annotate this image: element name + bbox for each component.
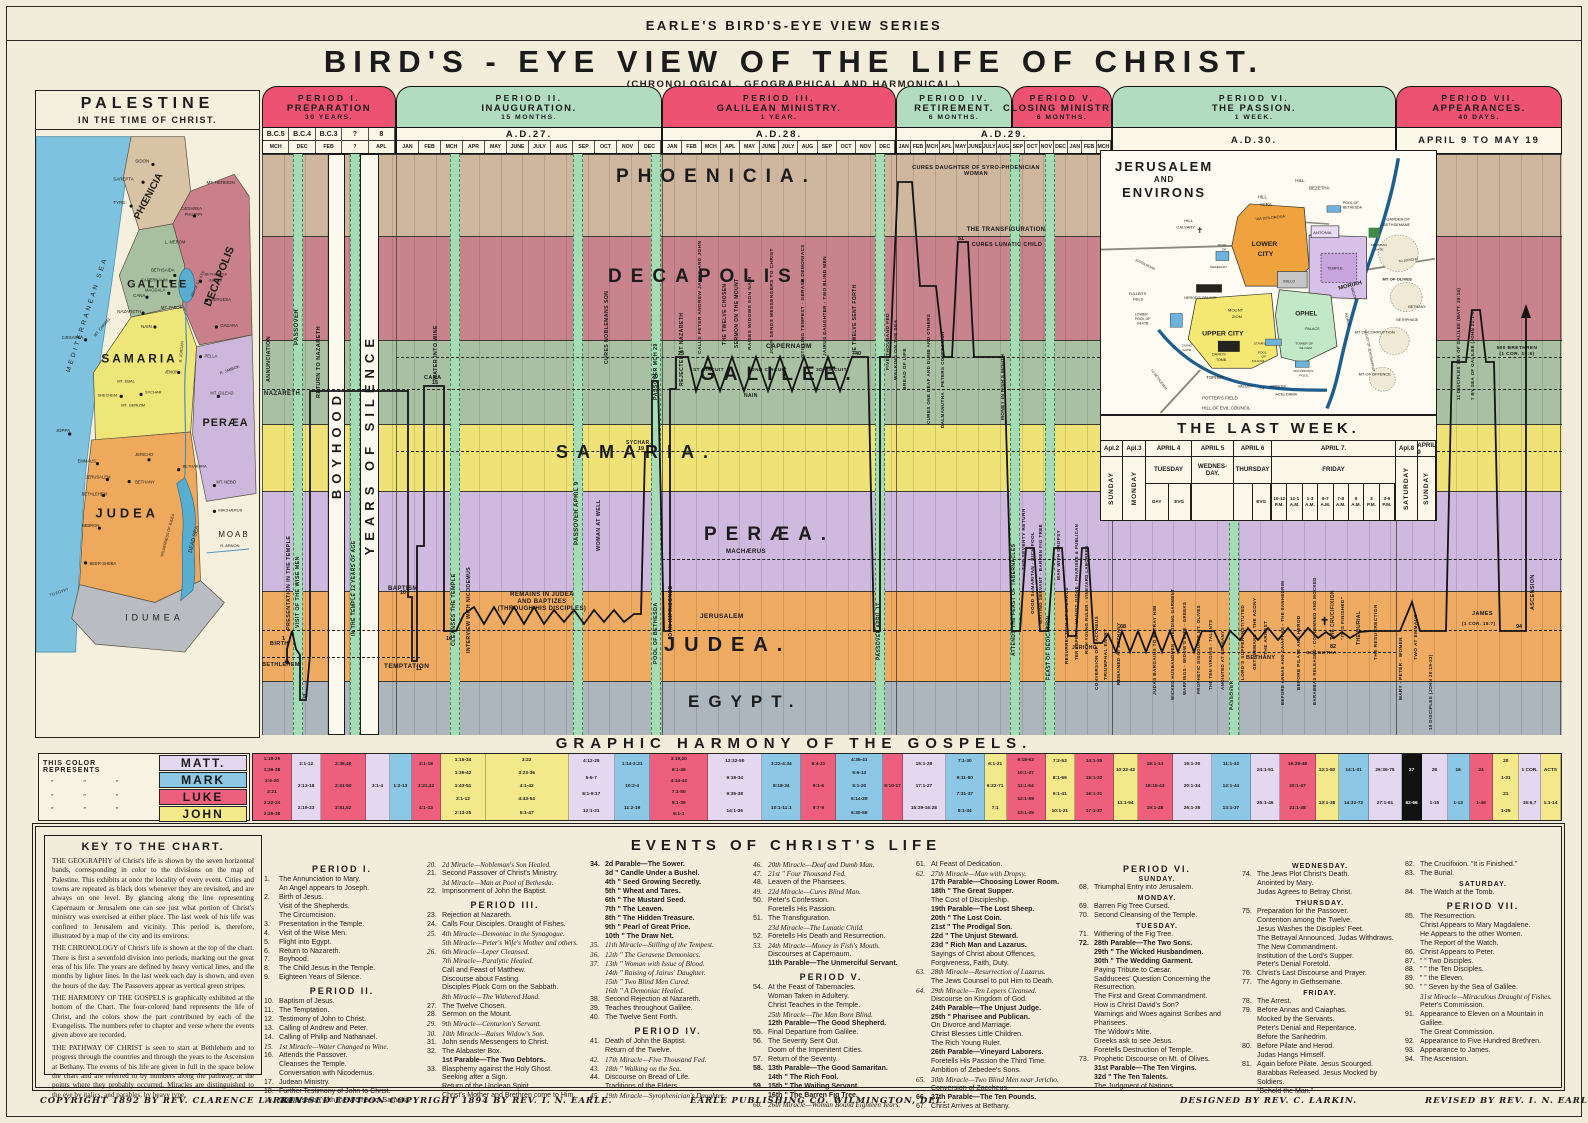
event-line: 4.Visit of the Wise Men. (264, 930, 420, 939)
city-dot (102, 494, 105, 497)
month-cell: NOV (856, 141, 875, 153)
event-line: Return of the Unclean Spirit. (427, 1083, 583, 1092)
event-number: 74. (1242, 871, 1257, 880)
event-number: 92. (1405, 1038, 1420, 1047)
map-label: ANTONIA (1313, 230, 1332, 235)
bottom-panel: KEY TO THE CHART. THE GEOGRAPHY of Chris… (35, 826, 1562, 1088)
davids-tomb-mark (1218, 341, 1240, 352)
city-dot (139, 393, 142, 396)
harmony-reference: 14:32-72 (1344, 801, 1363, 807)
event-number: 82. (1405, 861, 1420, 870)
harmony-reference: 25:1-46 (1257, 801, 1274, 807)
event-period-heading: PERIOD I. (264, 864, 420, 874)
map-label: SHUSHAN (1371, 243, 1388, 247)
event-day-heading: TUESDAY. (1079, 923, 1235, 930)
event-line: 22.Imprisonment of John the Baptist. (427, 888, 583, 897)
event-line: The Cost of Discipleship. (916, 897, 1072, 906)
event-number: 80. (1242, 1043, 1257, 1052)
harmony-reference: 16:1-31 (1086, 792, 1103, 798)
harmony-reference: 5-6-7 (586, 776, 597, 782)
event-number: 93. (1405, 1047, 1420, 1056)
jerusalem-title-line2: AND (1115, 175, 1213, 185)
arnon-river (206, 549, 249, 553)
event-line: 87.” ” Two Disciples. (1405, 958, 1561, 967)
harmony-reference: 9:18-62 (1017, 758, 1034, 764)
map-label: MACHÆRUS (218, 507, 242, 512)
period-tab: PERIOD VII.APPEARANCES.40 DAYS. (1396, 86, 1562, 127)
event-line: Visit of the Shepherds. (264, 903, 420, 912)
harmony-reference: 9:7-9 (813, 806, 824, 812)
harmony-reference: 9:11-50 (957, 776, 973, 782)
event-line: 4th " Seed Growing Secretly. (590, 879, 746, 888)
harmony-reference: 10:1-11:1 (771, 806, 792, 812)
last-week-day: THURSDAY (1234, 457, 1271, 484)
last-week-date: APRIL 4 (1146, 441, 1191, 457)
event-number: 35. (590, 941, 605, 950)
map-label: GETHSEMANE (1382, 223, 1410, 227)
harmony-reference: 19:1-28 (1147, 806, 1164, 812)
event-line: 27.The Twelve Chosen. (427, 1003, 583, 1012)
map-label: DUNG (1182, 343, 1192, 347)
last-week-day-area: TUESDAYDAYEVG (1146, 457, 1191, 520)
city-dot (106, 478, 109, 481)
harmony-reference: 4:1-13 (419, 806, 433, 812)
event-line: Cleanses the Temple. (264, 1061, 420, 1070)
event-number: 12. (264, 1016, 279, 1025)
harmony-segment: 19:29-4820:1-4721:1-38 (1280, 754, 1315, 820)
map-label: TEMPLE (1327, 267, 1343, 271)
map-label: SAREPTA (113, 176, 133, 181)
harmony-reference: 18:1-14 (1147, 762, 1164, 768)
city-dot (68, 432, 71, 435)
harmony-reference: 3:22 (522, 758, 532, 764)
harmony-reference: 11:1-33 (1223, 762, 1239, 768)
event-number: 91. (1405, 1011, 1420, 1020)
period-duration: 40 DAYS. (1458, 114, 1500, 121)
map-label: OPHEL (1295, 311, 1317, 318)
event-line: 35.11th Miracle—Stilling of the Tempest. (590, 941, 746, 950)
harmony-reference: 21 (1503, 792, 1508, 798)
harmony-reference: 20 (1503, 759, 1508, 765)
event-number: 26. (427, 948, 442, 957)
event-line: The Jews Counsel to put Him to Death. (916, 978, 1072, 987)
ditto-marks: ″ ″ ″ (43, 807, 153, 814)
harmony-reference: 6:14-29 (851, 797, 868, 803)
event-line: The Report of the Watch. (1405, 940, 1561, 949)
harmony-reference: 10:1-21 (1052, 809, 1069, 815)
harmony-reference: 20:1-47 (1289, 784, 1306, 790)
city-dot (177, 371, 180, 374)
last-week-day-label: SUNDAY (1108, 472, 1115, 505)
harmony-reference: 13:1-35 (1017, 811, 1034, 817)
key-paragraph: THE GEOGRAPHY of Christ's life is shown … (52, 857, 254, 941)
event-number: 13. (264, 1025, 279, 1034)
event-line: 49.22d Miracle—Cures Blind Man. (753, 888, 909, 897)
event-number: 25. (427, 930, 442, 939)
key-paragraph: THE CHRONOLOGY of Christ's life is shown… (52, 944, 254, 991)
event-number: 8. (264, 965, 279, 974)
event-number: 1. (264, 876, 279, 885)
map-label: ZION (1232, 314, 1242, 319)
harmony-reference: 15:1-32 (1086, 776, 1103, 782)
event-line: Greeks ask to see Jesus. (1079, 1038, 1235, 1047)
event-number: 14. (264, 1034, 279, 1043)
event-line: 54.At the Feast of Tabernacles. (753, 984, 909, 993)
harmony-segment: 15:1-2817:1-2715:29-16:28 (903, 754, 946, 820)
solomons-pool-mark (1295, 361, 1309, 367)
event-number: 31. (427, 1039, 442, 1048)
map-label: KIDRON (1344, 313, 1351, 327)
harmony-reference: 7:2-53 (1053, 759, 1067, 765)
harmony-segment: 201-31211-25 (1493, 754, 1519, 820)
map-label: SOLOMON'S (1293, 369, 1313, 373)
event-line: 65.30th Miracle—Two Blind Men near Jeric… (916, 1076, 1072, 1085)
month-cell: FEB (1082, 141, 1096, 153)
harmony-segment: 24:1-5125:1-46 (1251, 754, 1280, 820)
city-dot (98, 527, 101, 530)
period-name: PREPARATION (287, 103, 371, 114)
event-line: How is Christ David's Son? (1079, 1002, 1235, 1011)
event-number: 23. (427, 912, 442, 921)
event-line: 92.Appearance to Five Hundred Brethren. (1405, 1038, 1561, 1047)
event-number: 38. (590, 996, 605, 1005)
ditto-marks: ″ ″ ″ (43, 794, 153, 801)
map-label: POOL OF (1135, 317, 1151, 321)
city-dot (120, 395, 123, 398)
map-label: JERICHO (135, 452, 154, 457)
city-dot (167, 292, 170, 295)
last-week-day-area: SUNDAY (1101, 457, 1122, 520)
harmony-reference: 1:2-13 (393, 784, 407, 790)
harmony-reference: 8:4-21 (811, 762, 825, 768)
last-week-day-area: SUNDAY (1418, 457, 1435, 520)
map-label: HILL OF EVIL COUNCIL (1202, 406, 1251, 411)
event-line: 46.20th Miracle—Deaf and Dumb Man. (753, 861, 909, 870)
month-cell: MCH (702, 141, 721, 153)
event-number: 94. (1405, 1056, 1420, 1065)
event-number: 70. (1079, 912, 1094, 921)
event-line: 72.28th Parable—The Two Sons. (1079, 940, 1235, 949)
event-line: 80.Before Pilate and Herod. (1242, 1043, 1398, 1052)
harmony-segment: 12:22-509:18-349:35-3814:1-36 (708, 754, 762, 820)
event-line: 3.Presentation in the Temple. (264, 921, 420, 930)
harmony-segment: 9:10-17 (883, 754, 903, 820)
month-cell: JULY (983, 141, 997, 153)
month-cell: FEB (316, 141, 342, 153)
timeline-year-cells: B.C.5B.C.4B.C.3?8 (263, 128, 395, 140)
event-line: Contention among the Twelve. (1242, 917, 1398, 926)
event-number: 55. (753, 1029, 768, 1038)
month-cell: AUG (997, 141, 1011, 153)
year-cell: ? (342, 128, 368, 140)
event-line: 7th Miracle—Paralytic Healed. (427, 957, 583, 966)
year-cell: 8 (369, 128, 395, 140)
event-line: Christ Teaches in the Temple. (753, 1002, 909, 1011)
harmony-reference: 6:22-71 (987, 784, 1004, 790)
map-label: PALACE (1305, 327, 1320, 331)
map-label: CALVARY (1176, 225, 1195, 230)
event-number: 20. (427, 861, 442, 870)
map-label: MT. HERMON (206, 180, 234, 185)
last-week-date: APRIL 6 (1234, 441, 1271, 457)
events-column: 34.2d Parable—The Sower.3d " Candle Unde… (590, 861, 746, 1101)
month-cell: APL (940, 141, 954, 153)
harmony-reference: 2:22-24 (264, 801, 281, 807)
event-number: 59. (753, 1083, 768, 1092)
map-label: DAVID'S (1212, 353, 1226, 357)
event-line: Christ Blesses Little Children. (916, 1031, 1072, 1040)
map-label: HILL (1295, 178, 1305, 183)
last-week-day: SUNDAY (1101, 457, 1122, 520)
event-number: 22. (427, 888, 442, 897)
harmony-reference: 14:1-35 (1086, 759, 1103, 765)
period-number: PERIOD III. (743, 93, 815, 103)
last-week-hour-cell: 10-12 P.M. (1272, 484, 1287, 520)
city-dot (151, 163, 154, 166)
event-line: 44.Discourse on Bread of Life. (590, 1074, 746, 1083)
event-line: Doom of the Impenitent Cities. (753, 1047, 909, 1056)
last-week-title: THE LAST WEEK. (1101, 416, 1436, 441)
event-number: 21. (427, 870, 442, 879)
event-line: 64.29th Miracle—Ten Lepers Cleansed. (916, 987, 1072, 996)
harmony-segment: 3:1-183:21,224:1-13 (412, 754, 441, 820)
map-label: HILL (1184, 218, 1194, 223)
event-line: The First and Great Commandment. (1079, 993, 1235, 1002)
pool-of-siloam-mark (1266, 339, 1282, 345)
map-label: R. ARNON (220, 543, 239, 548)
map-label: BETHPHAGE (1396, 318, 1419, 322)
map-label: MT OF OFFENCE (1359, 373, 1392, 377)
period-tab: PERIOD V.CLOSING MINISTRY.6 MONTHS. (1012, 86, 1112, 127)
event-line: Discourse about Fasting. (427, 976, 583, 985)
harmony-reference: 14:1-31 (1345, 768, 1362, 774)
timeline-year-label: A.D.27. (397, 128, 661, 140)
harmony-reference: 10:2-4 (625, 784, 639, 790)
chart-page: EARLE'S BIRD'S-EYE VIEW SERIES BIRD'S - … (0, 0, 1588, 1123)
event-line: 40.The Twelve Sent Forth. (590, 1014, 746, 1023)
timeline-months: JANFEBMCHAPLMAYJUNEJULYAUGSEPOCTNOVDEC (663, 140, 895, 153)
map-label: TOWER OF (1295, 342, 1313, 346)
month-cell: JAN (897, 141, 911, 153)
last-week-column: Apl.3MONDAY (1123, 441, 1146, 520)
month-cell: MAY (485, 141, 507, 153)
period-name: APPEARANCES. (1432, 103, 1526, 114)
event-number: 5. (264, 939, 279, 948)
last-week-day: TUESDAY (1146, 457, 1191, 484)
map-label: IDUMEA (125, 612, 183, 622)
event-line: Christ Appears to Mary Magdalene. (1405, 922, 1561, 931)
map-label: FIELD (1133, 298, 1144, 302)
timeline-year-label: A.D.29. (897, 128, 1111, 140)
event-line: 86.Christ Appears to Peter. (1405, 949, 1561, 958)
jerusalem-map: JERUSALEM AND ENVIRONS (1100, 150, 1437, 415)
harmony-segment: 4:12-255-6-78:1-9:1712:1-21 (569, 754, 616, 820)
map-label: ÆNON (165, 370, 178, 375)
harmony-reference: 10:22-42 (1116, 768, 1135, 774)
month-cell: FEB (419, 141, 441, 153)
event-number: 29. (427, 1020, 442, 1029)
event-line: 51.The Transfiguration. (753, 915, 909, 924)
event-number: 42. (590, 1056, 605, 1065)
map-label: STAIRS (1254, 342, 1266, 346)
map-label: GADARA (220, 323, 238, 328)
last-week-day: WEDNES- DAY. (1192, 457, 1233, 484)
event-line: Barabbas Released. Jesus Mocked by Soldi… (1242, 1070, 1398, 1088)
harmony-reference: 14:1-36 (726, 809, 743, 815)
period-number: PERIOD I. (298, 93, 360, 103)
period-number: PERIOD VI. (1219, 93, 1289, 103)
harmony-legend: THIS COLOR REPRESENTS ″ ″ ″ ″ ″ ″ ″ ″ ″ … (38, 753, 250, 821)
event-line: 32d " The Ten Talents. (1079, 1074, 1235, 1083)
event-line: 77.The Agony in Gethsemane. (1242, 979, 1398, 988)
map-label: GERGESA (210, 297, 231, 302)
event-number: 75. (1242, 908, 1257, 917)
map-label: GARDEN OF (1386, 218, 1410, 222)
map-label: JOPPA ROAD (1134, 258, 1156, 271)
ascension-arrow-icon (1521, 304, 1531, 318)
event-line: 26.6th Miracle—Leper Cleansed. (427, 948, 583, 957)
map-label: JOPPA (56, 428, 70, 433)
event-line: 6th " The Mustard Seed. (590, 897, 746, 906)
event-line: 71.Withering of the Fig Tree. (1079, 931, 1235, 940)
harmony-reference: 2:19-23 (298, 806, 315, 812)
harmony-reference: 9:1-6 (813, 784, 824, 790)
event-line: 10th " The Draw Net. (590, 933, 746, 942)
event-line: 43.18th " Walking on the Sea. (590, 1065, 746, 1074)
harmony-reference: 18:15-43 (1145, 784, 1164, 790)
period-name: CLOSING MINISTRY. (1003, 103, 1121, 114)
harmony-reference: 2:21 (267, 790, 277, 796)
map-label: SIDON (135, 158, 149, 163)
harmony-reference: 3:23-36 (518, 771, 535, 777)
period-duration: 6 MONTHS. (929, 114, 980, 121)
event-line: 78.The Arrest. (1242, 998, 1398, 1007)
harmony-reference: 28 (1432, 768, 1437, 774)
event-line: 42.17th Miracle—Five Thousand Fed. (590, 1056, 746, 1065)
harmony-reference: 62-66 (1405, 801, 1417, 807)
harmony-reference: 3:1-18 (419, 762, 433, 768)
harmony-reference: 20:1-34 (1184, 784, 1201, 790)
timeline-segment: A.D.29.JANFEBMCHAPLMAYJUNEJULYAUGSEPOCTN… (896, 127, 1112, 154)
event-line: 17.Judean Ministry. (264, 1079, 420, 1088)
event-line: 58.13th Parable—The Good Samaritan. (753, 1065, 909, 1074)
city-dot (193, 214, 196, 217)
event-line: 81.Again before Pilate. Jesus Scourged. (1242, 1061, 1398, 1070)
event-line: 8th Miracle—The Withered Hand. (427, 993, 583, 1002)
harmony-segment: 1:15-341:35-421:43-512:1-122:13-25 (441, 754, 486, 820)
harmony-segment: 1:14-3:2110:2-411:2-19 (615, 754, 650, 820)
map-label: SILOAM (1299, 346, 1312, 350)
footer-credit: COPYRIGHT 1892 BY REV. CLARENCE LARKIN. (40, 1096, 307, 1106)
map-label: BETHANY (135, 480, 155, 485)
event-line: The Widow's Mite. (1079, 1029, 1235, 1038)
city-dot (215, 325, 218, 328)
month-cell: OCT (837, 141, 856, 153)
map-label: BETHESDA (1343, 206, 1363, 210)
harmony-segment: 11:1-3312:1-4413:1-37 (1212, 754, 1251, 820)
event-line: 23.Rejection at Nazareth. (427, 912, 583, 921)
garden-of-gethsemane-mark (1369, 228, 1380, 238)
harmony-segment: 3:22-4:348:18-3410:1-11:1 (762, 754, 801, 820)
event-line: 1.The Annunciation to Mary. (264, 876, 420, 885)
event-number: 4. (264, 930, 279, 939)
harmony-reference: 1:15-34 (455, 758, 472, 764)
harmony-reference: 8:1-59 (1053, 776, 1067, 782)
month-cell: SEP (573, 141, 595, 153)
harmony-reference: 5:1-20 (852, 784, 866, 790)
harmony-segment: 7:2-538:1-599:1-4110:1-21 (1046, 754, 1075, 820)
city-dot (96, 462, 99, 465)
harmony-band: 1:18-251:26-382:6-202:212:22-242:25-382:… (252, 753, 1562, 821)
event-number: 33. (427, 1066, 442, 1075)
harmony-reference: 7:1-30 (958, 759, 972, 765)
event-line: 23d " Rich Man and Lazarus. (916, 942, 1072, 951)
month-cell: JUNE (760, 141, 779, 153)
map-label: MILLO (1283, 280, 1295, 284)
event-line: Peter's Denial Foretold. (1242, 961, 1398, 970)
harmony-reference: 4:14-44 (670, 779, 687, 785)
event-number: 88. (1405, 966, 1420, 975)
event-number: 43. (590, 1065, 605, 1074)
harmony-reference: 9:35-38 (726, 792, 743, 798)
event-line: 47.21st " Four Thousand Fed. (753, 870, 909, 879)
event-number: 69. (1079, 903, 1094, 912)
gospel-chip-luke: LUKE (159, 789, 247, 805)
map-label: HEZEKIAH (1210, 265, 1227, 269)
events-column: 61.At Feast of Dedication.62.27th Miracl… (916, 861, 1072, 1112)
event-line: The New Commandment. (1242, 944, 1398, 953)
last-week-day-area: FRIDAY10-12 P.M.12-1 A.M.1-3 A.M.6-7 A.M… (1272, 457, 1395, 520)
harmony-reference: 5:1-39 (672, 801, 686, 807)
harmony-reference: 4:43-54 (518, 797, 535, 803)
city-dot (199, 355, 202, 358)
map-label: OF (1260, 386, 1266, 390)
year-cell: B.C.4 (289, 128, 315, 140)
event-number: 44. (590, 1074, 605, 1083)
period-tab: PERIOD I.PREPARATION30 YEARS. (262, 86, 396, 127)
harmony-reference: 13:1-38 (1319, 801, 1336, 807)
event-line: 89.” ” the Eleven. (1405, 975, 1561, 984)
map-label: SAMARIA (101, 352, 177, 366)
event-line: 59.15th " The Waiting Servant. (753, 1083, 909, 1092)
event-line: 88.” ” the Ten Disciples. (1405, 966, 1561, 975)
event-line: 6.Return to Nazareth. (264, 948, 420, 957)
event-line: 29.9th Miracle—Centurion's Servant. (427, 1020, 583, 1029)
month-cell: JUNE (968, 141, 982, 153)
event-line: 37.13th " Woman with Issue of Blood. (590, 960, 746, 969)
month-cell: NOV (1040, 141, 1054, 153)
event-line: 8.The Child Jesus in the Temple. (264, 965, 420, 974)
map-label: NAZARETH (117, 309, 141, 314)
event-line: 21.Second Passover of Christ's Ministry. (427, 870, 583, 879)
event-number: 6. (264, 948, 279, 957)
harmony-reference: 1:35-42 (455, 771, 472, 777)
event-number: 30. (427, 1030, 442, 1039)
event-line: 74.The Jews Plot Christ's Death. (1242, 871, 1398, 880)
harmony-reference: 1:43-51 (455, 784, 472, 790)
event-number: 89. (1405, 975, 1420, 984)
harmony-reference: 6:1-21 (988, 762, 1002, 768)
event-line: 17th Parable—Choosing Lower Room. (916, 879, 1072, 888)
events-title: EVENTS OF CHRIST'S LIFE (556, 837, 1016, 854)
harmony-segment: 161-13 (1448, 754, 1470, 820)
month-cell: MCH (263, 141, 289, 153)
map-label: MT OF CORRUPTION (1355, 331, 1395, 335)
event-number: 34. (590, 861, 605, 870)
city-dot (84, 561, 87, 564)
event-line: Judas Hangs Himself. (1242, 1052, 1398, 1061)
year-cell: B.C.5 (263, 128, 289, 140)
